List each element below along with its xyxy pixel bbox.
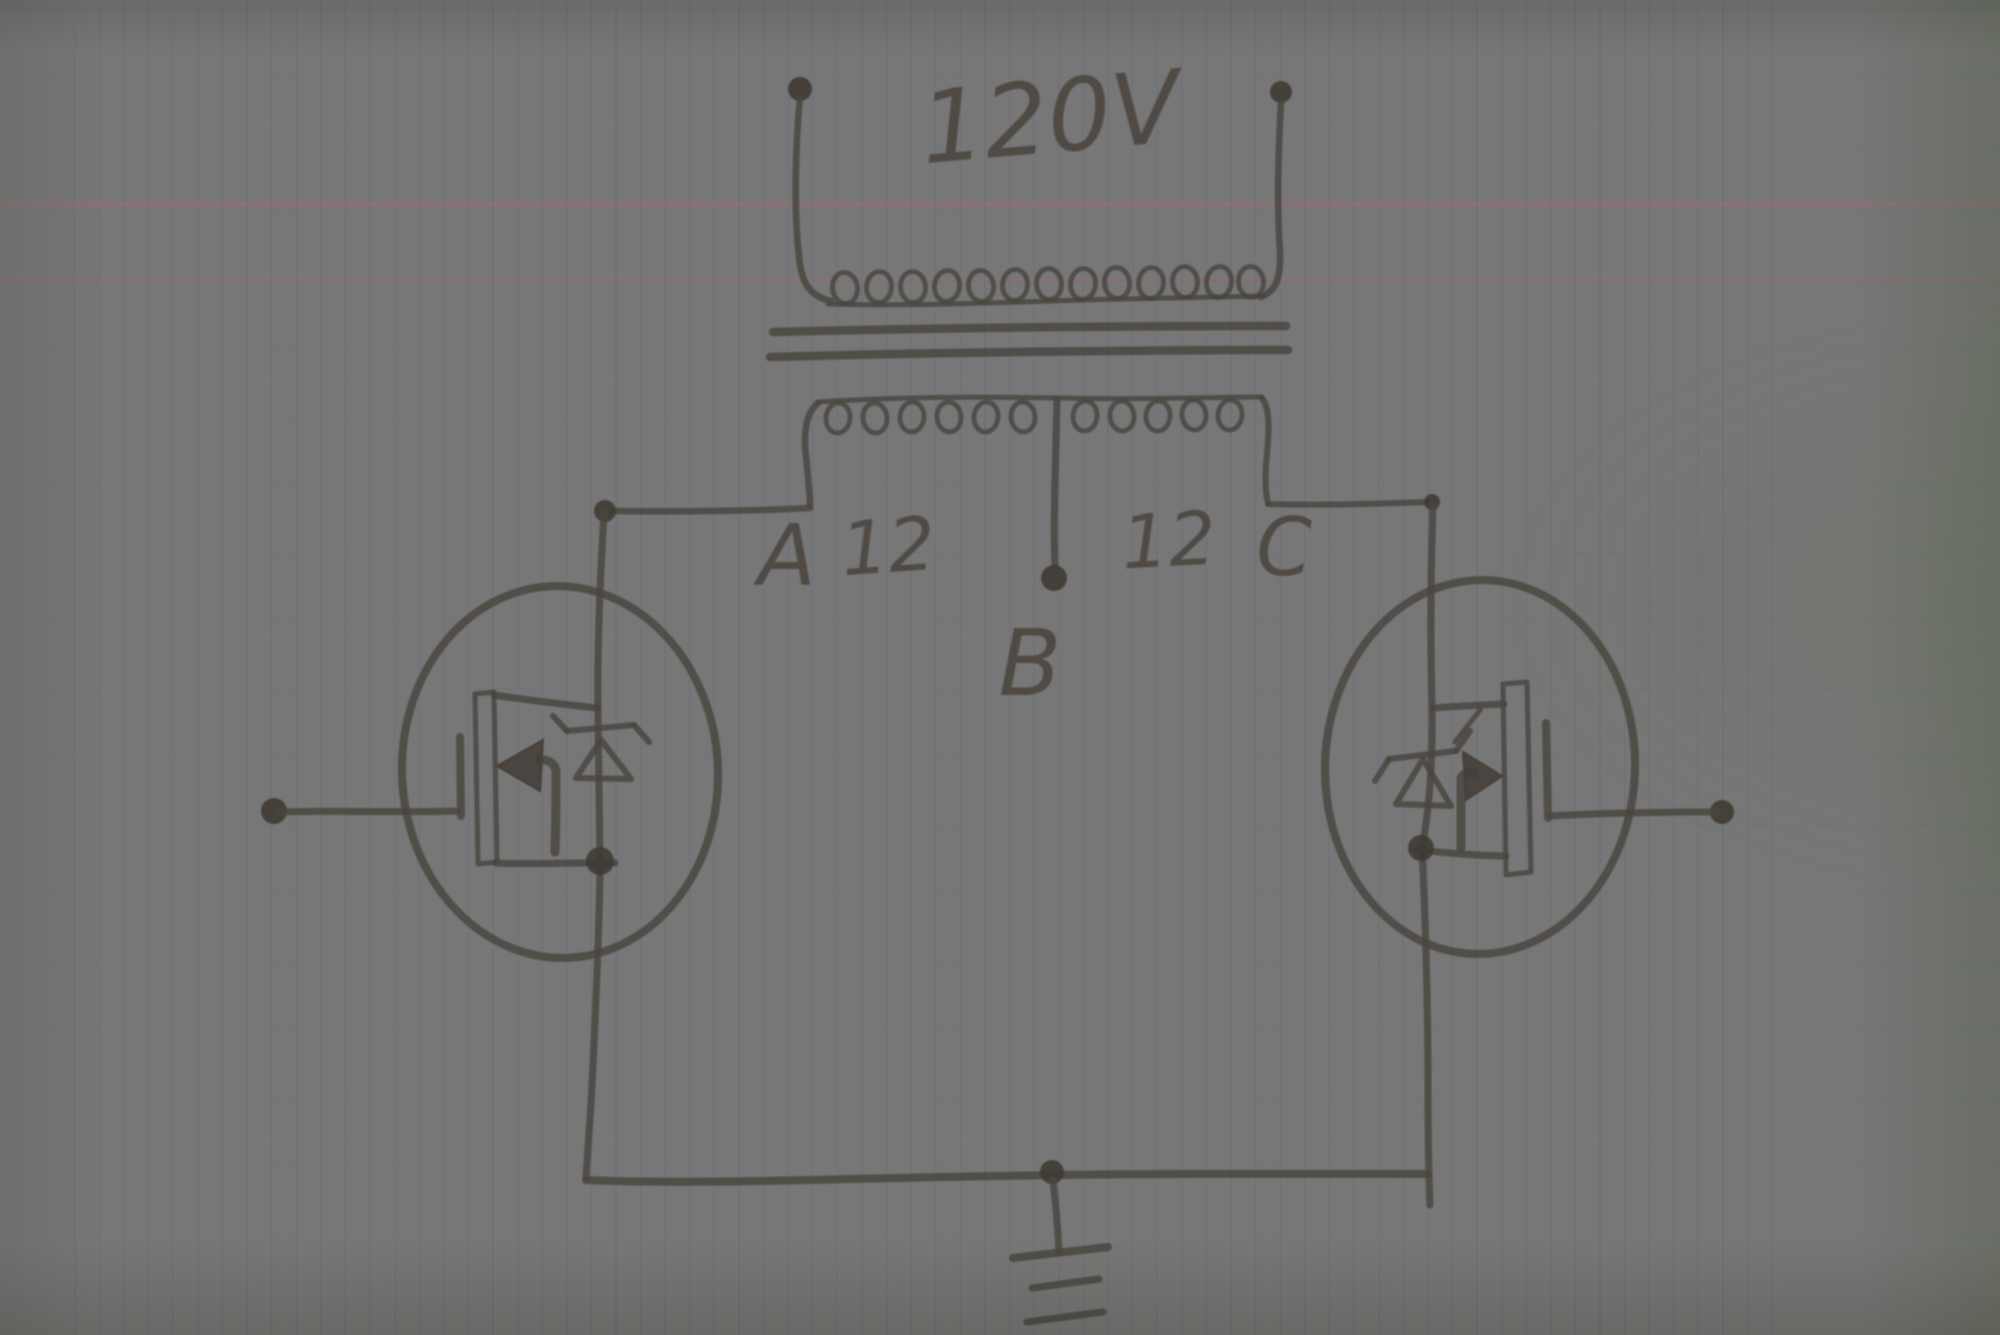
coil-loop xyxy=(1145,400,1172,432)
coil-loop xyxy=(967,269,996,303)
ground-symbol xyxy=(1013,1160,1108,1322)
left-zener-bar xyxy=(567,725,634,731)
secondary-lead-c xyxy=(1262,398,1269,503)
coil-loop xyxy=(1137,266,1165,299)
mosfet-right-symbol xyxy=(1319,575,1734,960)
coil-loop xyxy=(1216,399,1243,431)
coil-loop xyxy=(1171,265,1199,298)
left-arrow-head xyxy=(497,740,543,791)
left-gate-bar xyxy=(460,737,461,816)
coil-loop xyxy=(1180,399,1207,432)
primary-left-lead xyxy=(796,97,831,301)
coil-loop xyxy=(830,271,859,305)
center-tap-lead-b xyxy=(1054,400,1057,567)
left-bus-wire xyxy=(586,513,604,1179)
right-arrow-head xyxy=(1463,752,1502,800)
coil-loop xyxy=(1001,268,1029,301)
coil-loop xyxy=(1069,267,1098,301)
primary-right-lead xyxy=(1261,103,1281,297)
mosfet-left-symbol xyxy=(261,578,728,966)
coil-loop xyxy=(1204,265,1233,299)
label-winding-right-12: 12 xyxy=(1119,496,1218,587)
transformer-core-line-bottom xyxy=(770,350,1288,357)
ground-bar-2 xyxy=(1032,1279,1099,1288)
label-tap-c: C xyxy=(1256,501,1312,594)
coil-loop xyxy=(824,402,851,434)
ground-stem xyxy=(1053,1180,1059,1252)
coil-loop xyxy=(899,270,927,303)
coil-loop xyxy=(1071,400,1098,432)
left-source-junction-dot xyxy=(586,847,614,875)
transformer-symbol: 120V A 12 12 C B xyxy=(594,47,1440,717)
secondary-coil-loops xyxy=(824,399,1243,435)
coil-loop xyxy=(1102,266,1131,300)
coil-loop xyxy=(1010,401,1037,433)
left-drain-wire xyxy=(494,695,598,708)
label-tap-b: B xyxy=(998,610,1061,717)
notebook-page: 120V A 12 12 C B xyxy=(0,0,2000,1335)
right-gate-bar xyxy=(1546,723,1548,818)
coil-loop xyxy=(932,269,961,303)
right-body-diode-triangle xyxy=(1396,759,1451,806)
ground-bar-3 xyxy=(1027,1312,1103,1322)
coil-loop xyxy=(1108,400,1135,432)
bottom-rail-wire xyxy=(586,1174,1428,1182)
coil-loop xyxy=(1237,265,1265,298)
coil-loop xyxy=(972,401,999,434)
left-zener-wing-right xyxy=(634,725,649,742)
right-source-junction-dot xyxy=(1408,835,1434,861)
left-zener-wing-left xyxy=(553,716,567,731)
pencil-schematic: 120V A 12 12 C B xyxy=(0,0,2000,1335)
right-gate-wire xyxy=(1550,812,1718,816)
coil-loop xyxy=(899,401,926,433)
coil-loop xyxy=(1035,267,1063,300)
transformer-core-line-top xyxy=(773,326,1286,332)
right-zener-wing-left xyxy=(1375,759,1389,781)
secondary-lead-a xyxy=(805,403,818,506)
left-body-diode-triangle xyxy=(576,740,631,779)
tap-b-terminal-dot xyxy=(1041,565,1067,591)
ground-bar-1 xyxy=(1013,1247,1108,1258)
right-channel-bar xyxy=(1503,682,1531,875)
primary-right-terminal-dot xyxy=(1270,81,1292,103)
label-winding-left-12: 12 xyxy=(838,501,938,593)
label-120v: 120V xyxy=(916,47,1191,187)
coil-loop xyxy=(935,401,962,433)
left-gate-wire xyxy=(278,811,458,812)
coil-loop xyxy=(865,270,893,303)
label-tap-a: A xyxy=(753,507,816,606)
left-channel-bar xyxy=(475,692,497,864)
right-drain-wire xyxy=(1433,704,1504,708)
coil-loop xyxy=(861,402,888,435)
